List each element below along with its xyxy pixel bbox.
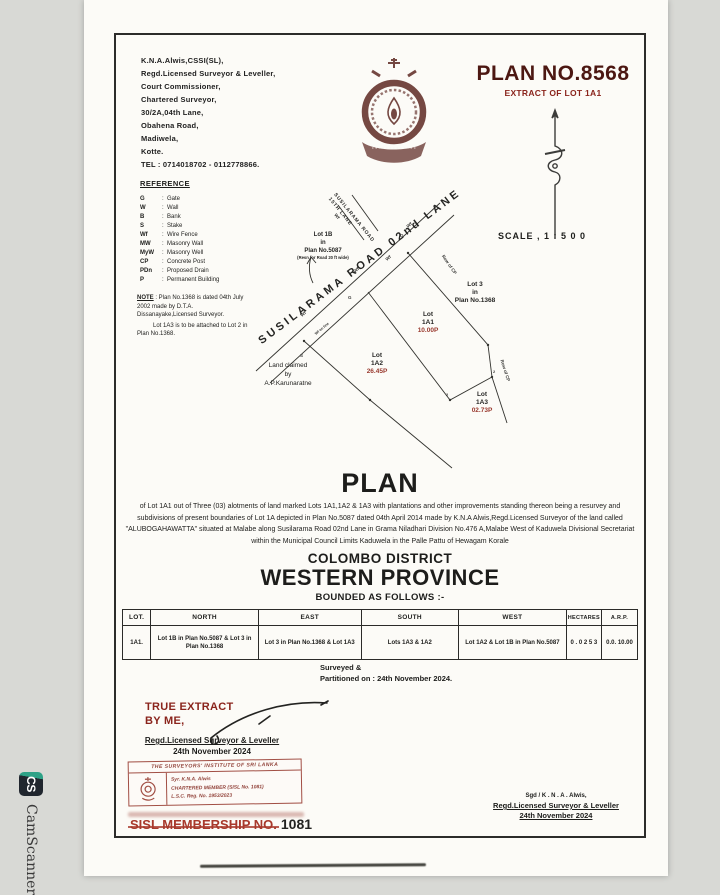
membership-number: 1081 [281,816,312,832]
institute-stamp: THE SURVEYORS' INSTITUTE OF SRI LANKA Sy… [128,758,303,806]
reference-item: CPConcrete Post [140,258,219,267]
reference-item: GGate [140,195,219,204]
note-text-1: : Plan No.1368 is dated 04th July 2002 m… [137,295,243,318]
reference-item: PPermanent Building [140,276,219,285]
reference-item: MyWMasonry Well [140,249,219,258]
surveyed-line-1: Surveyed & [320,662,452,673]
ref-meaning: Masonry Well [162,249,203,258]
col-lot: LOT. [123,610,151,626]
letterhead-line: 30/2A,04th Lane, [141,106,275,119]
stamp-lines: Syr. K.N.A. Alwis CHARTERED MEMBER (SISL… [167,771,302,805]
membership-label: SISL MEMBERSHIP NO. [130,817,277,832]
camscanner-watermark: CS CamScanner [18,772,44,885]
stamp-logo-cell [129,773,168,806]
letterhead-line: Obahena Road, [141,119,275,132]
true-extract-date: 24th November 2024 [132,747,292,756]
note-label: NOTE [137,295,154,301]
sisl-membership: SISL MEMBERSHIP NO.1081 [130,816,312,832]
plan-number: PLAN NO.8568 [455,62,651,86]
lot-1a3-name: 1A3 [458,399,506,407]
cell-south: Lots 1A3 & 1A2 [361,626,458,660]
camscanner-label: CamScanner [23,804,39,895]
reference-item: PDnProposed Drain [140,267,219,276]
land-claim-line: by [247,370,329,379]
lot-1a3-extent: 02.73P [458,407,506,415]
letterhead-line: Court Commissioner, [141,80,275,93]
true-extract-designation: Regd.Licensed Surveyor & Leveller [132,736,292,745]
sig-designation: Regd.Licensed Surveyor & Leveller [472,801,640,810]
land-claim-name: A.P.Karunaratne [247,379,329,388]
district-heading: COLOMBO DISTRICT [122,551,638,566]
lot-1b-plan: Plan No.5087 [283,247,363,255]
letterhead-line: TEL : 0714018702 - 0112778866. [141,158,275,171]
plan-section-title: PLAN [122,468,638,499]
lot-1b-reservation: (Resn for Road 20 ft wide) [283,255,363,261]
camscanner-icon: CS [19,772,43,796]
surveyed-line-2: Partitioned on : 24th November 2024. [320,673,452,684]
extract-subtitle: EXTRACT OF LOT 1A1 [455,88,651,98]
col-arp: A.R.P. [602,610,638,626]
stake-marker: S [300,353,303,358]
sig-date: 24th November 2024 [472,811,640,820]
ref-abbr: CP [140,258,162,267]
ref-abbr: S [140,222,162,231]
land-claim-line: Land claimed [247,361,329,370]
note-block: NOTE : Plan No.1368 is dated 04th July 2… [137,294,251,339]
cell-north: Lot 1B in Plan No.5087 & Lot 3 in Plan N… [151,626,259,660]
lot-1b-in: in [283,239,363,247]
wire-fence-marker: Wf [384,254,392,262]
land-claim-note: Land claimed by A.P.Karunaratne [247,361,329,388]
reference-item: BBank [140,213,219,222]
letterhead-line: K.N.A.Alwis,CSSI(SL), [141,54,275,67]
ref-meaning: Masonry Wall [162,240,203,249]
letterhead-line: Madiwela, [141,132,275,145]
stamp-registration: L.S.C. Reg. No. 1953/2023 [171,791,297,802]
table-header-row: LOT. NORTH EAST SOUTH WEST HECTARES A.R.… [123,610,638,626]
ref-abbr: PDn [140,267,162,276]
wire-fence-on-line-marker: Wf on line [314,322,330,336]
reference-legend: REFERENCE GGate WWall BBank SStake WfWir… [140,179,219,285]
point-marker: 2 [493,369,496,374]
point-marker: 2 [446,392,449,397]
cell-arp: 0.0. 10.00 [602,626,638,660]
stamp-body: Syr. K.N.A. Alwis CHARTERED MEMBER (SISL… [129,771,302,806]
ref-meaning: Wall [162,204,178,213]
letterhead-line: Regd.Licensed Surveyor & Leveller, [141,67,275,80]
gate-marker: G [348,295,352,300]
lot-1a1-label: Lot 1A1 10.00P [404,311,452,335]
bounded-as-follows-heading: BOUNDED AS FOLLOWS :- [122,592,638,603]
survey-drawing: Wf Wf Wf Wf Wf G G S 2 2 Wf on line [250,185,540,485]
ref-abbr: B [140,213,162,222]
ref-meaning: Gate [162,195,180,204]
ref-meaning: Bank [162,213,181,222]
lot-1a3-word: Lot [458,391,506,399]
ref-meaning: Permanent Building [162,276,219,285]
note-paragraph-1: NOTE : Plan No.1368 is dated 04th July 2… [137,294,251,320]
lot-1a2-word: Lot [353,352,401,360]
lot-1a1-word: Lot [404,311,452,319]
ref-abbr: P [140,276,162,285]
ref-abbr: MyW [140,249,162,258]
reference-title: REFERENCE [140,179,219,188]
ref-meaning: Wire Fence [162,231,198,240]
col-south: SOUTH [361,610,458,626]
reference-item: WfWire Fence [140,231,219,240]
sgd-line: Sgd / K . N . A . Alwis, [472,793,640,799]
crest-icon [342,56,446,164]
lot-3-plan: Plan No.1368 [445,297,505,305]
surveyor-crest-emblem [342,56,446,169]
lot-3-label: Lot 3 in Plan No.1368 [445,281,505,305]
ref-meaning: Stake [162,222,182,231]
reference-item: WWall [140,204,219,213]
letterhead-line: Kotte. [141,145,275,158]
stamp-emblem-icon [137,776,157,802]
ref-meaning: Concrete Post [162,258,205,267]
north-arrow-icon [540,106,570,249]
ref-abbr: Wf [140,231,162,240]
ref-meaning: Proposed Drain [162,267,209,276]
lot-1a2-name: 1A2 [353,360,401,368]
cell-east: Lot 3 in Plan No.1368 & Lot 1A3 [258,626,361,660]
reference-item: SStake [140,222,219,231]
col-north: NORTH [151,610,259,626]
reference-item: MWMasonry Wall [140,240,219,249]
lot-boundary-1a3 [368,292,492,400]
cell-hectares: 0 . 0 2 5 3 [566,626,601,660]
lot-1b-label: Lot 1B in Plan No.5087 (Resn for Road 20… [283,231,363,261]
north-arrow-svg [540,106,570,244]
lot-1a2-label: Lot 1A2 26.45P [353,352,401,376]
note-paragraph-2: Lot 1A3 is to be attached to Lot 2 in Pl… [137,322,251,339]
plan-description-paragraph: of Lot 1A1 out of Three (03) alotments o… [121,501,639,547]
col-east: EAST [258,610,361,626]
lot-1a1-extent: 10.00P [404,327,452,335]
col-west: WEST [459,610,567,626]
table-row: 1A1. Lot 1B in Plan No.5087 & Lot 3 in P… [123,626,638,660]
surveyor-letterhead: K.N.A.Alwis,CSSI(SL), Regd.Licensed Surv… [141,54,275,171]
lot-1a1-name: 1A1 [404,319,452,327]
ref-abbr: W [140,204,162,213]
ref-abbr: G [140,195,162,204]
cell-west: Lot 1A2 & Lot 1B in Plan No.5087 [459,626,567,660]
lot-1a3-label: Lot 1A3 02.73P [458,391,506,415]
lot-1b-name: Lot 1B [283,231,363,239]
letterhead-line: Chartered Surveyor, [141,93,275,106]
surveyed-note: Surveyed & Partitioned on : 24th Novembe… [320,662,452,684]
lot-3-name: Lot 3 [445,281,505,289]
boundaries-table: LOT. NORTH EAST SOUTH WEST HECTARES A.R.… [122,609,638,660]
col-hectares: HECTARES [566,610,601,626]
lot-3-in: in [445,289,505,297]
cell-lot: 1A1. [123,626,151,660]
lot-1a2-extent: 26.45P [353,368,401,376]
ref-abbr: MW [140,240,162,249]
province-heading: WESTERN PROVINCE [122,565,638,591]
signature-block: Sgd / K . N . A . Alwis, Regd.Licensed S… [472,793,640,820]
